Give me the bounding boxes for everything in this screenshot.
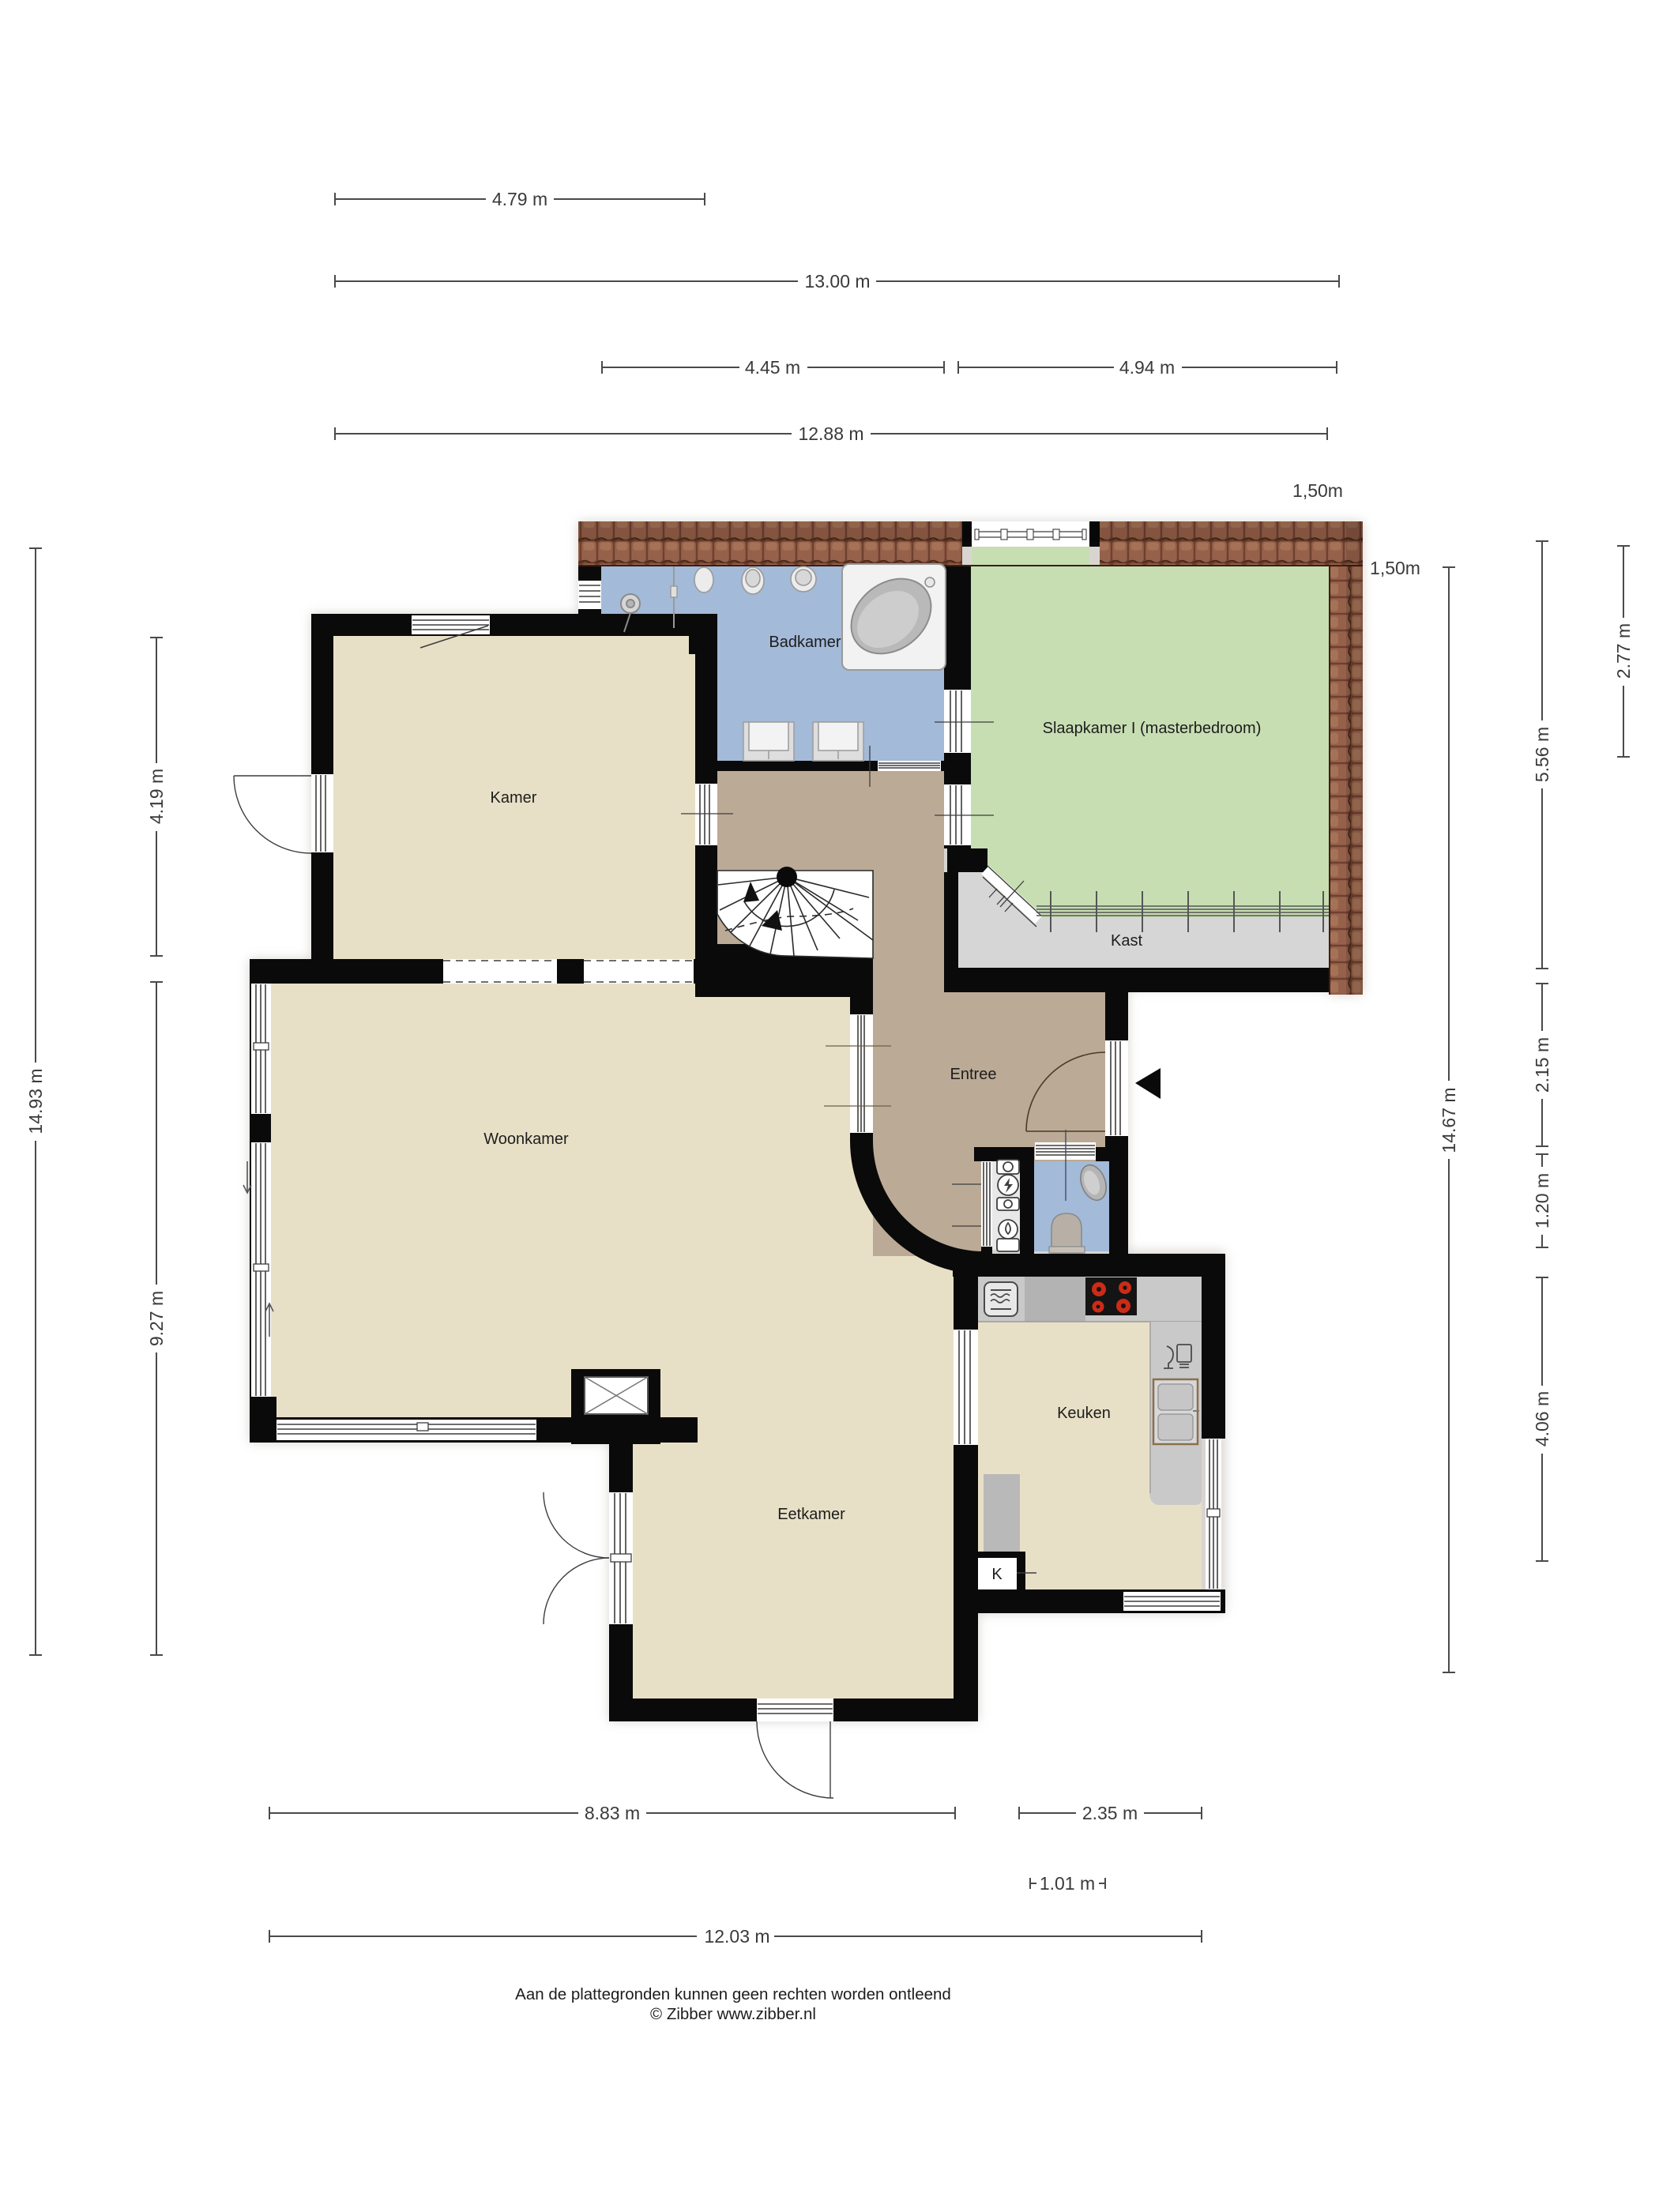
svg-text:2.77 m: 2.77 m — [1613, 623, 1634, 679]
svg-text:Eetkamer: Eetkamer — [777, 1506, 845, 1523]
svg-text:1.01 m: 1.01 m — [1040, 1873, 1095, 1894]
svg-text:Kast: Kast — [1111, 932, 1142, 950]
svg-text:4.19 m: 4.19 m — [146, 769, 167, 824]
svg-text:© Zibber www.zibber.nl: © Zibber www.zibber.nl — [650, 2005, 816, 2023]
svg-text:1.20 m: 1.20 m — [1532, 1173, 1552, 1228]
svg-text:Slaapkamer I (masterbedroom): Slaapkamer I (masterbedroom) — [1043, 720, 1262, 737]
svg-text:9.27 m: 9.27 m — [146, 1291, 167, 1346]
svg-text:13.00 m: 13.00 m — [804, 271, 870, 292]
svg-text:Keuken: Keuken — [1057, 1405, 1111, 1422]
svg-text:Kamer: Kamer — [491, 789, 537, 807]
svg-text:Entree: Entree — [950, 1066, 997, 1083]
svg-text:12.03 m: 12.03 m — [704, 1926, 769, 1947]
svg-text:14.93 m: 14.93 m — [25, 1068, 46, 1134]
svg-text:4.94 m: 4.94 m — [1119, 357, 1175, 378]
svg-text:14.67 m: 14.67 m — [1439, 1087, 1459, 1153]
svg-text:4.79 m: 4.79 m — [492, 189, 547, 209]
svg-text:1,50m: 1,50m — [1370, 558, 1420, 578]
svg-text:2.15 m: 2.15 m — [1532, 1037, 1552, 1093]
svg-text:4.06 m: 4.06 m — [1532, 1391, 1552, 1446]
svg-text:2.35 m: 2.35 m — [1082, 1803, 1138, 1823]
svg-text:8.83 m: 8.83 m — [585, 1803, 640, 1823]
svg-text:5.56 m: 5.56 m — [1532, 727, 1552, 782]
svg-text:Badkamer: Badkamer — [769, 634, 841, 651]
svg-text:K: K — [991, 1566, 1003, 1583]
svg-text:1,50m: 1,50m — [1292, 480, 1343, 501]
svg-text:Aan de plattegronden kunnen ge: Aan de plattegronden kunnen geen rechten… — [515, 1985, 951, 2003]
svg-text:12.88 m: 12.88 m — [798, 423, 863, 444]
svg-text:4.45 m: 4.45 m — [745, 357, 800, 378]
svg-text:Woonkamer: Woonkamer — [483, 1130, 569, 1148]
